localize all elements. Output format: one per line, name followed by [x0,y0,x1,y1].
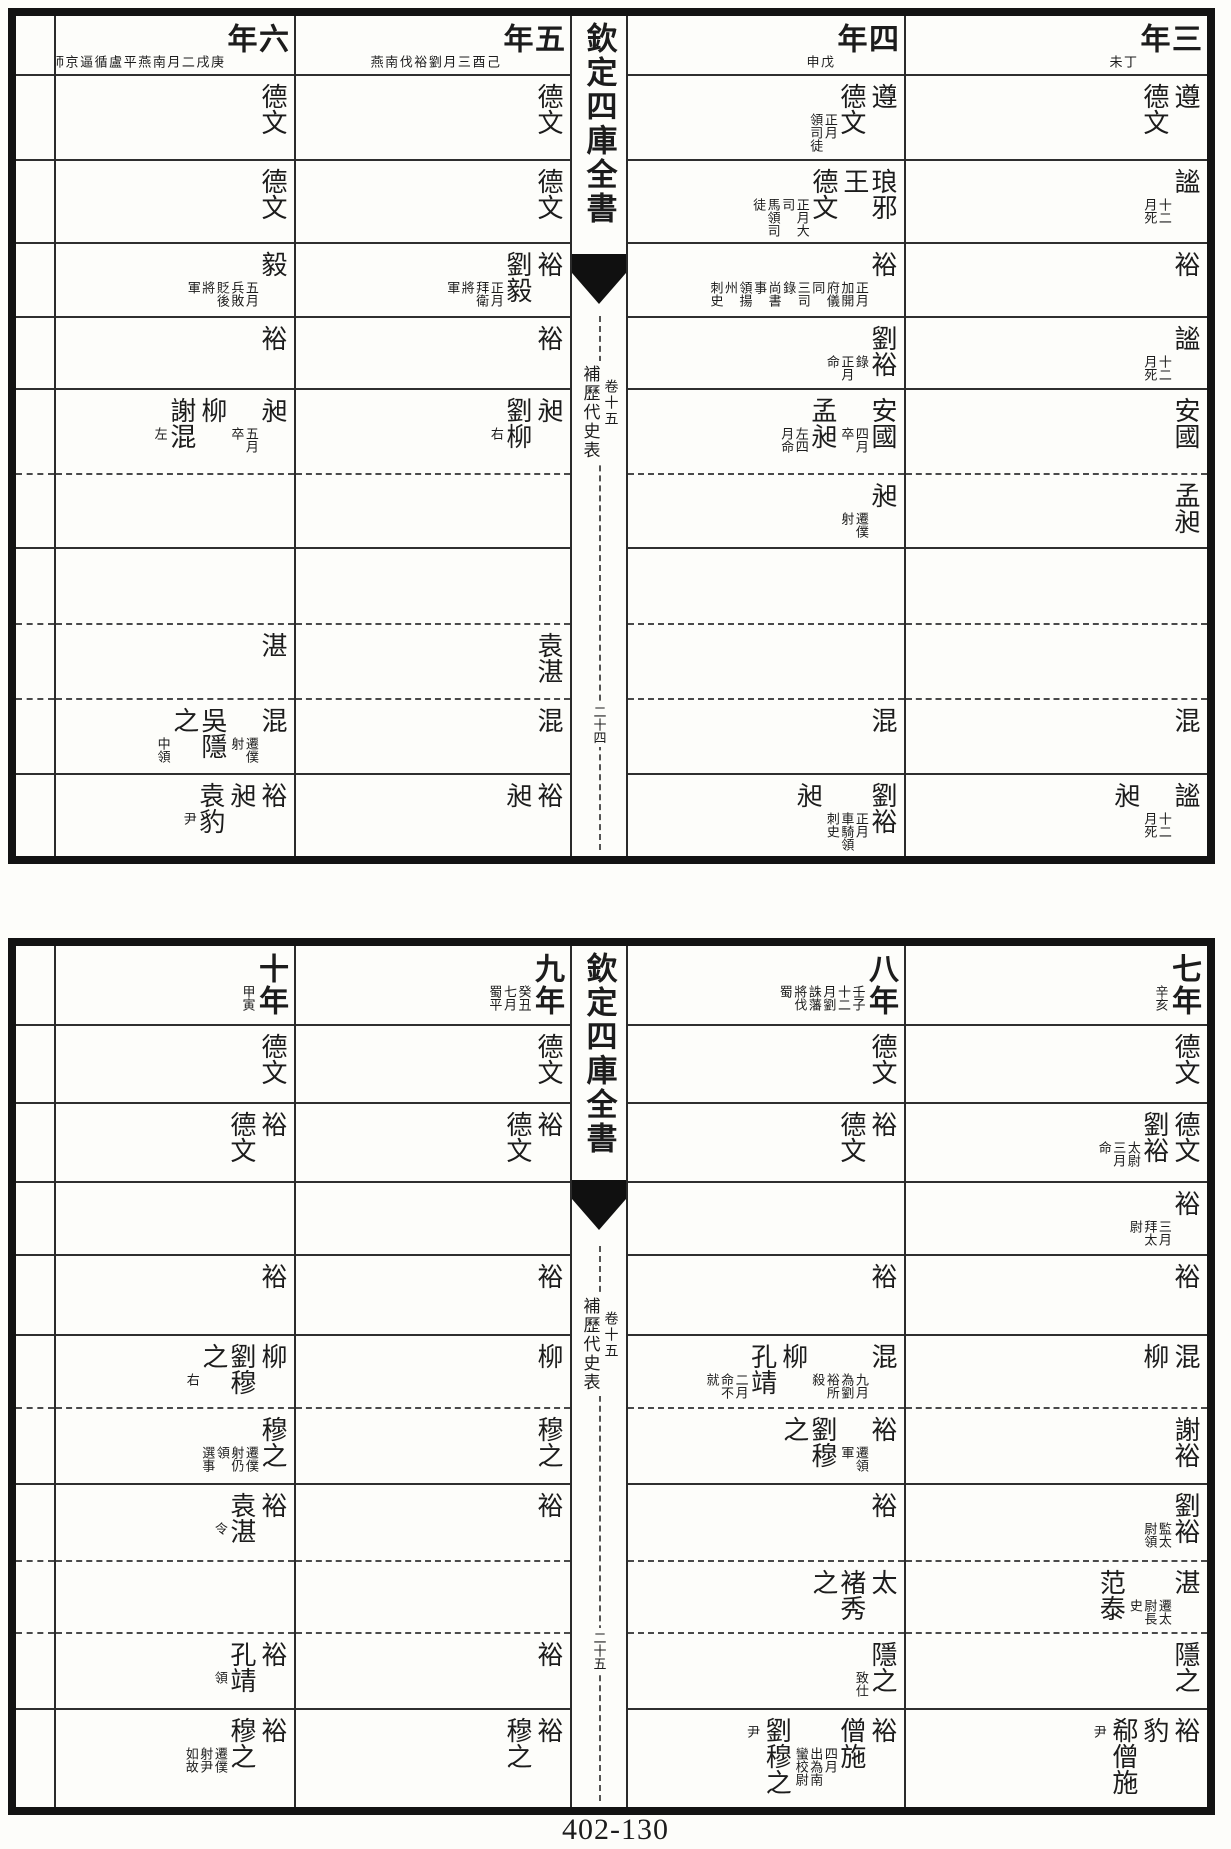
entry-name: 裕 [258,1111,286,1179]
entry: 吳隱之中領 [155,707,226,771]
entry-annotation: 正月加開 [839,281,868,314]
entry: 湛 [258,632,286,696]
entry: 尹 [1091,1717,1106,1803]
year-note: 壬子十二 [835,985,864,1022]
entry-annotation: 九月為劉 [839,1373,868,1405]
entry: 裕 [258,1641,286,1706]
table-cell: 劉裕正月車騎領刺史昶 [628,775,904,854]
table-cell: 裕 [628,1256,904,1336]
table-cell: 德文 [628,1026,904,1104]
year-label: 八年 [865,953,897,1022]
entry-name: 吳隱之 [170,707,226,771]
entry-annotation: 遷領 [853,1446,868,1481]
entry-name: 昶 [1111,782,1139,852]
entry: 劉穆之 [762,1717,790,1803]
table-cell [16,475,54,549]
entry-annotation: 兵敗 [229,281,244,314]
table-cell: 裕穆之 [296,1710,570,1805]
table-cell [16,775,54,854]
entry-name: 德文 [1140,83,1168,157]
table-cell: 裕德文 [628,1104,904,1183]
table-cell: 德文 [56,1026,294,1104]
entry-annotation: 卒 [839,427,854,471]
entry-name: 裕 [534,1492,562,1558]
entry-annotation: 刺史 [708,281,723,314]
entry-name: 柳 [779,1343,807,1405]
table-cell: 穆之 [296,1409,570,1485]
table-cell: 混 [906,700,1207,775]
folio-block-bottom: 十年甲寅德文裕德文裕柳劉穆之右穆之遷僕射仍領選事裕袁湛令裕孔靖領裕穆之遷僕射尹如… [8,938,1215,1815]
table-cell [56,1183,294,1256]
entry-annotation: 拜太 [1142,1220,1157,1252]
spine-column: 欽定四庫全書補歷代史表卷十五二十五 [572,946,628,1807]
entry-name: 袁湛 [534,632,562,696]
entry: 裕 [534,1111,562,1179]
entry-annotation: 令 [212,1522,227,1558]
entry: 裕 [1171,1717,1199,1803]
entry: 裕 [1171,251,1199,314]
spine-series-title: 補歷代史表 [582,1297,599,1392]
entry: 德文正月領司徒 [808,83,865,157]
entry-annotation: 射仍領 [214,1446,243,1481]
entry-name: 劉裕 [868,325,896,386]
year-note: 循逼京師 [56,55,107,72]
table-cell: 裕 [906,1256,1207,1336]
entry: 太 [868,1569,896,1630]
entry-name: 柳 [198,397,226,471]
entry: 裕三月拜太尉 [1127,1190,1199,1252]
spine-title: 欽定四庫全書 [584,952,615,1156]
entry: 裕 [258,325,286,386]
year-header-cell: 十年甲寅 [56,946,294,1026]
entry: 謐十二月死 [1142,325,1199,386]
table-cell [628,625,904,700]
entry-name: 德文 [837,1111,865,1179]
entry: 隱之致仕 [853,1641,896,1706]
table-cell: 混柳 [906,1336,1207,1409]
entry-name: 裕 [1171,251,1199,314]
year-header-cell: 三年丁未 [906,16,1207,76]
table-cell: 昶劉柳右 [296,390,570,475]
table-cell [906,625,1207,700]
entry-name: 郗僧施 [1109,1717,1137,1803]
entry-name: 謐 [1171,782,1199,852]
entry-name: 湛 [1171,1569,1199,1630]
entry-annotation: 選事 [200,1446,215,1481]
entry-name: 混 [258,707,286,771]
entry: 范泰 [1096,1569,1124,1630]
entry-annotation: 正月命 [824,355,853,386]
entry: 穆之遷僕射仍領選事 [200,1416,286,1481]
table-cell: 裕 [296,318,570,390]
entry: 遵 [1171,83,1199,157]
year-column: 九年癸丑七月蜀平德文裕德文裕柳穆之裕裕裕穆之 [296,946,572,1807]
entry-annotation: 史 [1127,1599,1142,1630]
table-cell: 德文 [296,76,570,161]
entry-annotation: 軍 [839,1446,854,1481]
entry-name: 德文 [868,1033,896,1100]
entry-name: 孔靖 [227,1641,255,1706]
entry-annotation: 遷太 [1156,1599,1171,1630]
entry: 劉毅正月拜衛將軍 [445,251,531,314]
table-cell: 太褚秀之 [628,1562,904,1634]
year-column: 六年庚戌二月南燕平盧循逼京師七月敗還廣州德文德文毅五月兵敗貶後將軍裕昶五月卒柳謝… [56,16,296,856]
entry: 裕 [534,1717,562,1803]
spine-caption: 補歷代史表卷十五 [572,1293,626,1396]
year-label: 三年 [1136,23,1199,72]
table-cell: 德文 [296,161,570,244]
entry: 德文正月大司馬領司徒 [751,168,837,240]
entry: 德文 [868,1033,896,1100]
entry-name: 褚秀之 [809,1569,865,1630]
entry: 劉穆之 [780,1416,836,1481]
entry: 昶遷僕射 [839,482,896,545]
table-cell: 裕 [56,1256,294,1336]
entry-name: 裕 [534,782,562,852]
entry: 劉柳右 [488,397,531,471]
table-cell: 劉裕錄正月命 [628,318,904,390]
entry-name: 遵 [868,83,896,157]
entry-annotation: 五月 [243,427,258,471]
table-cell [16,1634,54,1710]
table-cell: 裕三月拜太尉 [906,1183,1207,1256]
table-cell: 裕 [296,1485,570,1562]
year-column: 三年丁未遵德文謐十二月死裕謐十二月死安國孟昶混謐十二月死昶 [906,16,1207,856]
entry-annotation: 領 [212,1671,227,1706]
entry-annotation: 遷僕 [853,512,868,545]
entry-name: 琅邪王 [840,168,896,240]
entry-name: 袁湛 [227,1492,255,1558]
entry: 裕 [1171,1263,1199,1332]
entry-name: 劉穆之 [780,1416,836,1481]
entry: 袁湛令 [212,1492,255,1558]
entry-annotation: 尉領 [1142,1522,1157,1558]
entry-annotation: 月死 [1142,812,1157,852]
entry-annotation: 四月 [822,1747,837,1803]
entry-annotation: 尚書事 [752,281,781,314]
entry-name: 德文 [258,1033,286,1100]
year-column: 四年戊申遵德文正月領司徒琅邪王德文正月大司馬領司徒裕正月加開府儀同三司錄尚書事領… [628,16,906,856]
entry: 安國 [1171,397,1199,471]
table-cell [296,1562,570,1634]
entry: 僧施四月出為南蠻校尉 [793,1717,865,1803]
entry: 柳 [198,397,226,471]
entry-annotation: 遷僕 [212,1747,227,1803]
entry-name: 裕 [1171,1717,1199,1803]
entry: 裕 [534,325,562,386]
entry-name: 裕 [868,1416,896,1481]
entry: 裕遷領軍 [839,1416,896,1481]
entry: 袁湛 [534,632,562,696]
entry-name: 豹 [1140,1717,1168,1803]
table-cell [16,1710,54,1805]
entry-name: 昶 [534,397,562,471]
fishtail-mark-icon [572,1180,626,1230]
entry: 劉穆之右 [184,1343,255,1405]
year-note: 戊申 [804,55,833,72]
entry-annotation: 出為南 [808,1747,823,1803]
year-column: 八年壬子十二月劉誅藩將伐蜀德文裕德文裕混九月為劉裕所殺柳孔靖二月命不就裕遷領軍劉… [628,946,906,1807]
entry: 豹 [1140,1717,1168,1803]
entry-annotation: 十二 [1156,198,1171,240]
entry-name: 孔靖 [748,1343,776,1405]
table-cell [16,549,54,625]
table-cell [16,390,54,475]
entry-name: 裕 [534,1641,562,1706]
entry-annotation: 左 [152,427,167,471]
table-cell [16,1104,54,1183]
entry-annotation: 卒 [229,427,244,471]
entry-name: 裕 [534,1111,562,1179]
entry-annotation: 命不就 [704,1373,733,1405]
entry-annotation: 領司徒 [808,113,823,157]
table-cell: 昶五月卒柳謝混左 [56,390,294,475]
entry: 柳 [779,1343,807,1405]
table-cell [16,1409,54,1485]
spine-series-title: 補歷代史表 [582,365,599,460]
entry: 劉裕太尉三月命 [1096,1111,1168,1179]
year-header-cell: 五年己酉三月劉裕伐南燕 [296,16,570,76]
entry-annotation: 遷僕 [243,737,258,771]
entry-name: 裕 [534,1717,562,1803]
table-cell: 隱之致仕 [628,1634,904,1710]
year-header-cell: 八年壬子十二月劉誅藩將伐蜀 [628,946,904,1026]
entry-name: 裕 [868,1492,896,1558]
entry-annotation: 拜衛將 [459,281,488,314]
entry: 混遷僕射 [229,707,286,771]
table-cell: 孟昶 [906,475,1207,549]
entry: 德文 [227,1111,255,1179]
entry: 德文 [534,168,562,240]
table-cell: 遵德文 [906,76,1207,161]
entry-name: 隱之 [868,1641,896,1706]
entry-name: 安國 [868,397,896,471]
entry-annotation: 尹 [745,1725,760,1803]
entry: 德文 [837,1111,865,1179]
year-header-cell [16,16,54,76]
year-header-cell: 七年辛亥 [906,946,1207,1026]
year-column: 十年甲寅德文裕德文裕柳劉穆之右穆之遷僕射仍領選事裕袁湛令裕孔靖領裕穆之遷僕射尹如… [56,946,296,1807]
table-cell: 裕僧施四月出為南蠻校尉劉穆之尹 [628,1710,904,1805]
table-cell: 裕 [628,1485,904,1562]
entry-name: 德文 [534,168,562,240]
entry: 裕 [258,1263,286,1332]
entry-name: 太 [868,1569,896,1630]
entry: 毅五月兵敗貶後將軍 [185,251,286,314]
year-note: 燕 [368,55,383,72]
entry-annotation: 四月 [853,427,868,471]
entry-name: 昶 [258,397,286,471]
table-cell: 謐十二月死 [906,318,1207,390]
table-cell: 謐十二月死昶 [906,775,1207,854]
entry-annotation: 致仕 [853,1671,868,1706]
entry-name: 裕 [258,325,286,386]
entry-name: 裕 [868,1263,896,1332]
entry-annotation: 如故 [183,1747,198,1803]
entry: 郗僧施 [1109,1717,1137,1803]
entry: 裕 [534,782,562,852]
entry: 穆之 [503,1717,531,1803]
entry: 裕正月加開府儀同三司錄尚書事領揚州刺史 [708,251,896,314]
entry: 柳 [1140,1343,1168,1405]
entry-name: 隱之 [1171,1641,1199,1706]
entry-annotation: 錄 [853,355,868,386]
entry: 孔靖二月命不就 [704,1343,776,1405]
year-note: 劉裕伐南 [383,55,441,72]
page: 六年庚戌二月南燕平盧循逼京師七月敗還廣州德文德文毅五月兵敗貶後將軍裕昶五月卒柳謝… [0,0,1231,1849]
entry: 混 [868,707,896,771]
entry-annotation: 右 [488,427,503,471]
table-cell [56,1562,294,1634]
entry-name: 昶 [793,782,821,852]
entry: 德文 [534,83,562,157]
table-cell [296,1183,570,1256]
table-cell: 裕豹郗僧施尹 [906,1710,1207,1805]
year-header-cell [16,946,54,1026]
table-cell: 隱之 [906,1634,1207,1710]
entry: 昶 [534,397,562,471]
entry: 德文 [1171,1111,1199,1179]
entry-annotation: 正月大司 [780,198,809,240]
entry-name: 謐 [1171,325,1199,386]
entry-name: 裕 [868,1111,896,1179]
entry-name: 混 [1171,1343,1199,1405]
table-cell: 德文 [56,76,294,161]
entry: 孟昶左四月命 [779,397,836,471]
entry: 混 [534,707,562,771]
year-column: 五年己酉三月劉裕伐南燕德文德文裕劉毅正月拜衛將軍裕昶劉柳右袁湛混裕昶 [296,16,572,856]
entry: 昶五月卒 [229,397,286,471]
year-note: 丁未 [1107,55,1136,72]
entry: 尹 [745,1717,760,1803]
table-cell: 混 [628,700,904,775]
entry-annotation: 正月 [488,281,503,314]
entry-name: 德文 [1171,1033,1199,1100]
entry: 德文 [258,1033,286,1100]
entry-annotation: 二月 [733,1373,748,1405]
entry: 劉裕正月車騎領刺史 [824,782,896,852]
table-cell [16,700,54,775]
entry-annotation: 蠻校尉 [793,1747,808,1803]
entry-name: 德文 [534,1033,562,1100]
entry-name: 謐 [1171,168,1199,240]
table-cell: 裕 [906,244,1207,318]
year-label: 七年 [1168,953,1200,1022]
spine-caption: 補歷代史表卷十五 [572,361,626,464]
entry-name: 裕 [258,1492,286,1558]
entry: 劉裕監太尉領 [1142,1492,1199,1558]
table-cell: 湛遷太尉長史范泰 [906,1562,1207,1634]
entry-name: 混 [868,1343,896,1405]
spine-volume-label: 卷十五 [603,379,617,460]
table-cell: 混 [296,700,570,775]
entry-name: 穆之 [258,1416,286,1481]
year-note: 辛亥 [1153,985,1168,1022]
entry: 柳 [258,1343,286,1405]
entry-name: 德文 [258,83,286,157]
entry-name: 毅 [258,251,286,314]
entry-annotation: 三月 [1156,1220,1171,1252]
table-cell: 裕孔靖領 [56,1634,294,1710]
entry-name: 劉裕 [1140,1111,1168,1179]
year-note: 庚戌二月 [165,55,223,72]
entry-name: 混 [534,707,562,771]
entry-name: 孟昶 [1171,482,1199,545]
table-cell [16,161,54,244]
table-cell: 裕劉毅正月拜衛將軍 [296,244,570,318]
entry: 安國四月卒 [839,397,896,471]
entry: 裕 [868,1492,896,1558]
entry-annotation: 月死 [1142,198,1157,240]
table-cell [16,76,54,161]
entry: 穆之遷僕射尹如故 [183,1717,255,1803]
entry-annotation: 府儀同 [810,281,839,314]
entry-name: 柳 [258,1343,286,1405]
entry-name: 謝混 [167,397,195,471]
entry: 孟昶 [1171,482,1199,545]
entry: 謐十二月死 [1142,168,1199,240]
table-cell: 裕 [296,1634,570,1710]
entry-name: 湛 [258,632,286,696]
table-cell: 遵德文正月領司徒 [628,76,904,161]
entry-name: 混 [1171,707,1199,771]
entry-name: 裕 [1171,1190,1199,1252]
entry-name: 德文 [258,168,286,240]
year-column: 七年辛亥德文德文劉裕太尉三月命裕三月拜太尉裕混柳謝裕劉裕監太尉領湛遷太尉長史范泰… [906,946,1207,1807]
entry-annotation: 十二 [1156,812,1171,852]
table-cell [16,1256,54,1336]
entry: 昶 [793,782,821,852]
entry-annotation: 刺史 [824,812,839,852]
table-cell: 裕昶 [296,775,570,854]
table-cell: 琅邪王德文正月大司馬領司徒 [628,161,904,244]
table-cell [296,549,570,625]
year-label: 五年 [499,23,562,72]
table-cell: 裕德文 [56,1104,294,1183]
entry-annotation: 射 [229,737,244,771]
binding-margin-column [16,16,56,856]
entry-annotation: 裕所殺 [810,1373,839,1405]
entry: 混 [1171,1343,1199,1405]
entry: 謝混左 [152,397,195,471]
entry-annotation: 月死 [1142,355,1157,386]
entry: 謝裕 [1171,1416,1199,1481]
year-note: 癸丑七月 [501,985,530,1022]
entry: 混九月為劉裕所殺 [810,1343,896,1405]
table-cell: 袁湛 [296,625,570,700]
entry: 德文 [258,83,286,157]
entry-name: 僧施 [837,1717,865,1803]
entry-annotation: 領揚州 [722,281,751,314]
year-label: 四年 [833,23,896,72]
entry-annotation: 射尹 [198,1747,213,1803]
table-cell [16,244,54,318]
table-cell [16,625,54,700]
entry: 裕 [534,1492,562,1558]
entry-name: 裕 [534,325,562,386]
entry-name: 劉裕 [868,782,896,852]
table-cell [628,549,904,625]
entry-name: 劉穆之 [762,1717,790,1803]
table-cell: 德文 [56,161,294,244]
table-cell [16,318,54,390]
entry-annotation: 尉長 [1142,1599,1157,1630]
entry-name: 德文 [809,168,837,240]
table-cell: 混九月為劉裕所殺柳孔靖二月命不就 [628,1336,904,1409]
table-cell: 裕 [296,1256,570,1336]
entry-name: 穆之 [534,1416,562,1481]
table-cell: 裕昶袁豹尹 [56,775,294,854]
